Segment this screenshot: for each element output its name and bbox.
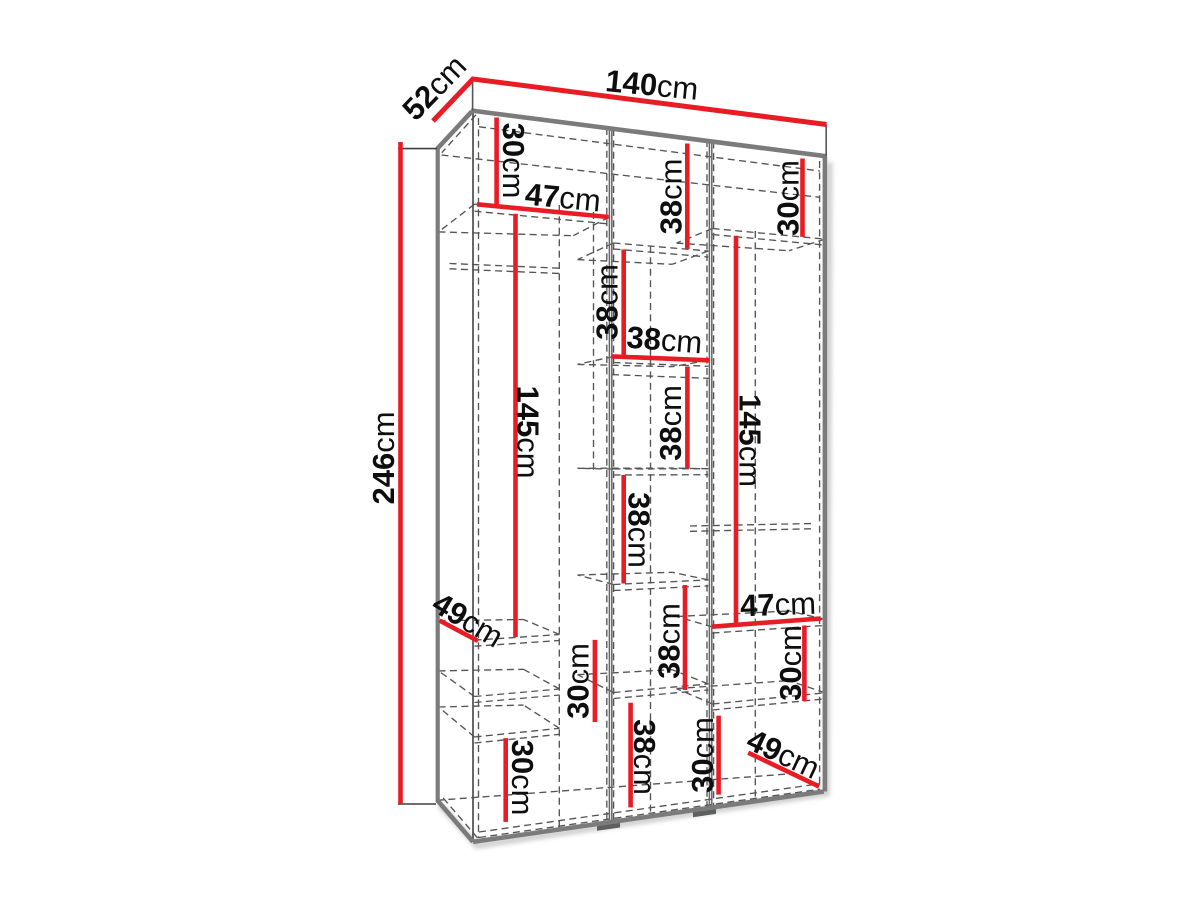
svg-text:38cm: 38cm — [651, 603, 686, 679]
svg-text:47cm: 47cm — [524, 176, 603, 218]
svg-text:30cm: 30cm — [770, 160, 805, 236]
svg-text:38cm: 38cm — [589, 264, 624, 340]
svg-text:30cm: 30cm — [773, 625, 808, 701]
svg-text:246cm: 246cm — [366, 411, 401, 504]
svg-text:145cm: 145cm — [733, 394, 768, 487]
svg-text:145cm: 145cm — [511, 385, 546, 478]
svg-text:38cm: 38cm — [628, 719, 663, 795]
svg-text:38cm: 38cm — [625, 319, 703, 360]
svg-text:30cm: 30cm — [685, 717, 720, 793]
svg-text:47cm: 47cm — [740, 585, 817, 623]
svg-text:38cm: 38cm — [653, 385, 688, 461]
svg-text:30cm: 30cm — [560, 643, 595, 719]
svg-text:38cm: 38cm — [622, 492, 657, 568]
svg-text:38cm: 38cm — [653, 159, 688, 235]
svg-text:30cm: 30cm — [506, 740, 541, 816]
